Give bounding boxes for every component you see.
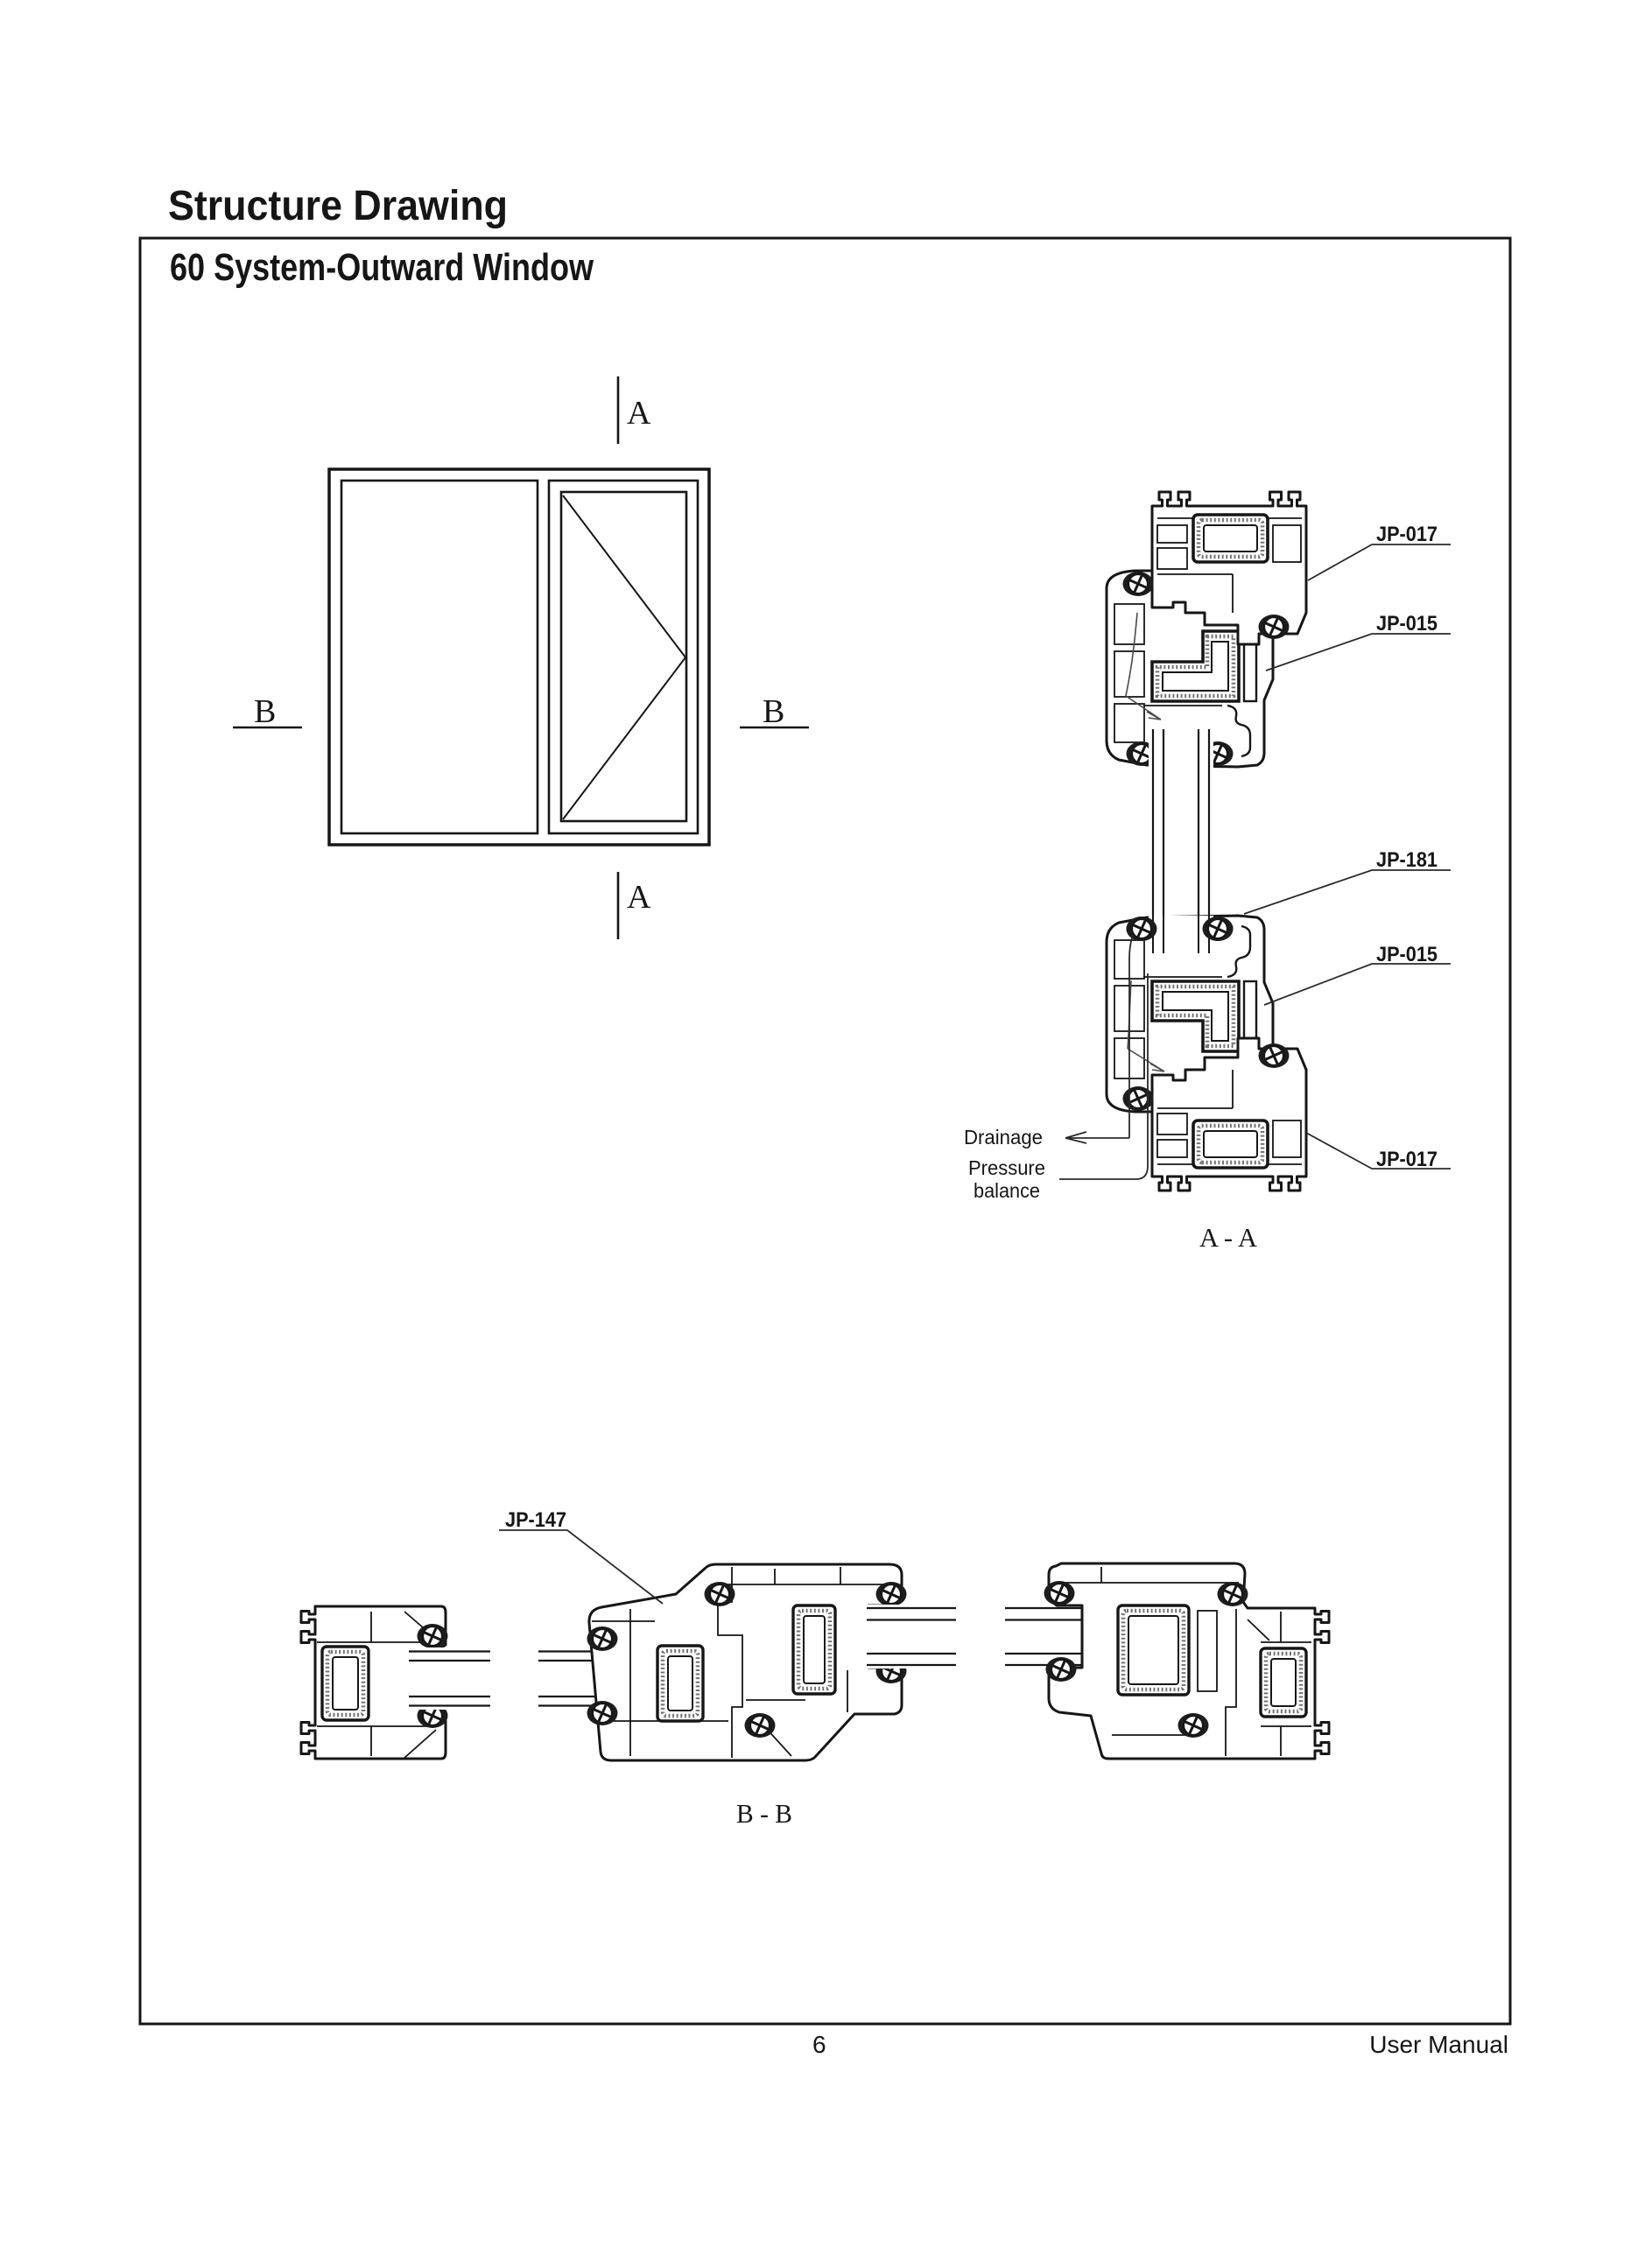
svg-text:JP-147: JP-147: [505, 1508, 566, 1532]
svg-text:JP-015: JP-015: [1376, 612, 1438, 636]
svg-text:JP-015: JP-015: [1376, 943, 1438, 966]
svg-text:balance: balance: [974, 1179, 1040, 1202]
svg-text:B: B: [763, 693, 784, 730]
svg-text:A: A: [627, 395, 651, 432]
svg-text:B: B: [254, 693, 276, 730]
svg-text:A - A: A - A: [1199, 1222, 1258, 1253]
svg-text:JP-017: JP-017: [1376, 1148, 1438, 1171]
svg-text:Drainage: Drainage: [964, 1126, 1043, 1149]
svg-text:Pressure: Pressure: [968, 1156, 1045, 1179]
svg-text:60 System-Outward Window: 60 System-Outward Window: [170, 246, 594, 289]
svg-text:JP-181: JP-181: [1376, 848, 1438, 872]
svg-text:User Manual: User Manual: [1369, 2031, 1508, 2058]
svg-text:B - B: B - B: [736, 1798, 792, 1829]
svg-text:Structure Drawing: Structure Drawing: [168, 183, 508, 229]
svg-text:A: A: [627, 879, 651, 916]
svg-text:6: 6: [812, 2031, 826, 2058]
svg-text:JP-017: JP-017: [1376, 523, 1438, 546]
